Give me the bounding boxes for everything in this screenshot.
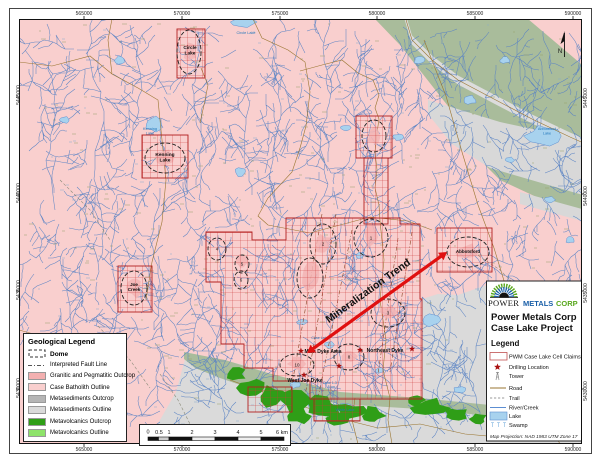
svg-text:3: 3 [213,430,216,436]
svg-text:0: 0 [146,430,149,436]
svg-text:0.5: 0.5 [155,430,163,436]
svg-text:5: 5 [259,430,262,436]
svg-text:1: 1 [167,430,170,436]
svg-text:2: 2 [190,430,193,436]
svg-text:6 km: 6 km [276,430,288,436]
svg-text:4: 4 [236,430,239,436]
